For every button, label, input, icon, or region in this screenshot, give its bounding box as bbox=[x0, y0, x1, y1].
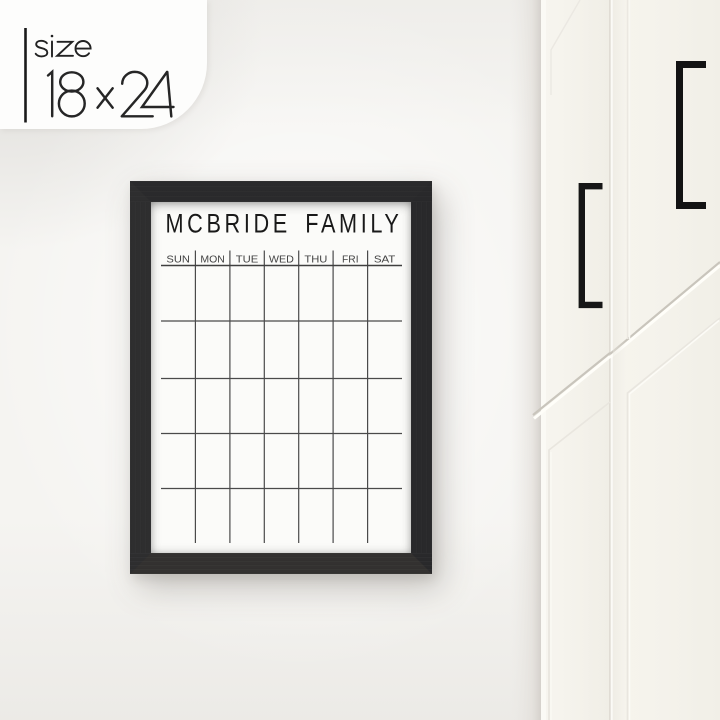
svg-text:WED: WED bbox=[269, 254, 294, 266]
svg-text:SUN: SUN bbox=[166, 254, 190, 266]
svg-text:MON: MON bbox=[200, 254, 225, 266]
svg-text:TUE: TUE bbox=[236, 254, 259, 266]
svg-text:FRI: FRI bbox=[342, 254, 359, 266]
svg-text:MCBRIDE FAMILY: MCBRIDE FAMILY bbox=[166, 209, 403, 239]
svg-text:SAT: SAT bbox=[374, 254, 396, 266]
svg-text:THU: THU bbox=[304, 254, 327, 266]
